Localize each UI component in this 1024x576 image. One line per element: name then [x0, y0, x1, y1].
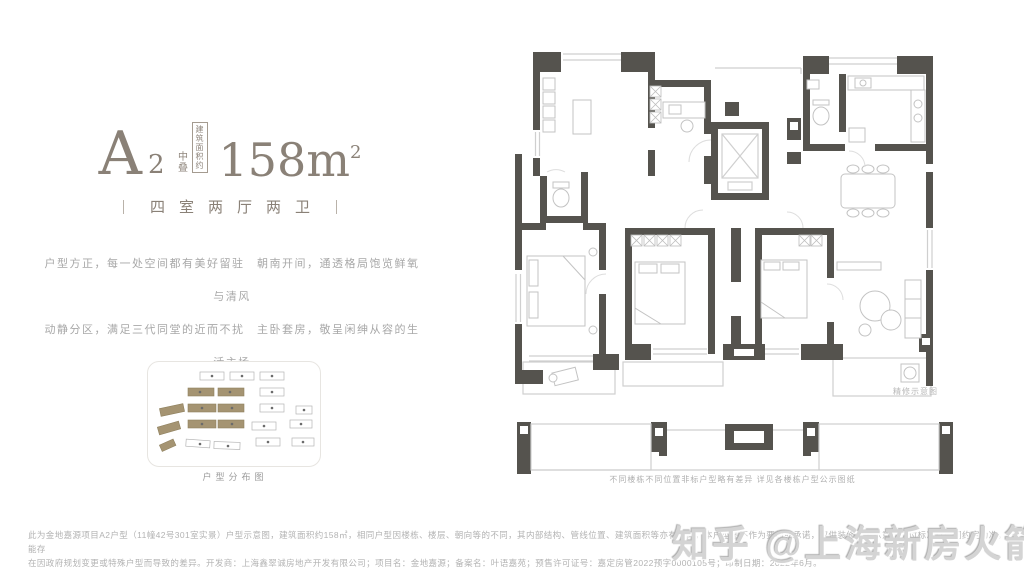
tier-label: 中叠 — [176, 151, 187, 173]
area-approx-box: 建筑 面积约 — [192, 122, 208, 173]
description-line-1: 户型方正，每一处空间都有美好留驻 朝南开间，通透格局饱览鲜氧与清风 — [42, 248, 422, 314]
fridge-icon — [849, 128, 865, 142]
site-map-caption: 户型分布图 — [147, 470, 319, 483]
sink-icon — [860, 80, 866, 86]
floor-plan-svg — [503, 22, 968, 487]
title-block: A 2 中叠 建筑 面积约 158m2 四室两厅两卫 — [100, 122, 360, 217]
subtitle-row: 四室两厅两卫 — [100, 196, 360, 217]
area-box-line2: 面积约 — [196, 143, 204, 170]
chair-icon — [681, 120, 693, 132]
room-config-subtitle: 四室两厅两卫 — [136, 196, 324, 217]
plan-code-number: 2 — [148, 152, 165, 178]
area-value: 158m2 — [219, 141, 362, 180]
area-number: 158m — [219, 133, 350, 187]
toilet-icon — [553, 189, 569, 207]
title-row: A 2 中叠 建筑 面积约 158m2 — [100, 122, 360, 180]
plan-code-letter: A — [99, 129, 142, 180]
area-box-line1: 建筑 — [196, 125, 204, 143]
area-superscript: 2 — [350, 142, 361, 163]
tv-cabinet-icon — [837, 262, 881, 270]
zhihu-watermark: 知乎 @上海新房火箭哥 — [672, 514, 1024, 568]
subtitle-right-bar — [336, 200, 337, 214]
stove-icon — [914, 100, 922, 108]
plan-bottom-caption: 不同楼栋不同位置非标户型略有差异 详见各楼栋户型公示图纸 — [535, 474, 930, 485]
dining-table-icon — [841, 174, 895, 208]
title-meta: 中叠 建筑 面积约 — [176, 122, 208, 173]
toilet-icon-2 — [813, 107, 829, 125]
site-map-svg — [148, 362, 320, 466]
plan-side-caption: 精修示意图 — [893, 386, 938, 397]
site-distribution-map — [147, 361, 321, 467]
floorplan-ad-page: A 2 中叠 建筑 面积约 158m2 四室两厅两卫 户型方正，每一处空间都有美… — [0, 0, 1024, 576]
elevator-icon — [722, 134, 758, 190]
subtitle-left-bar — [123, 200, 124, 214]
